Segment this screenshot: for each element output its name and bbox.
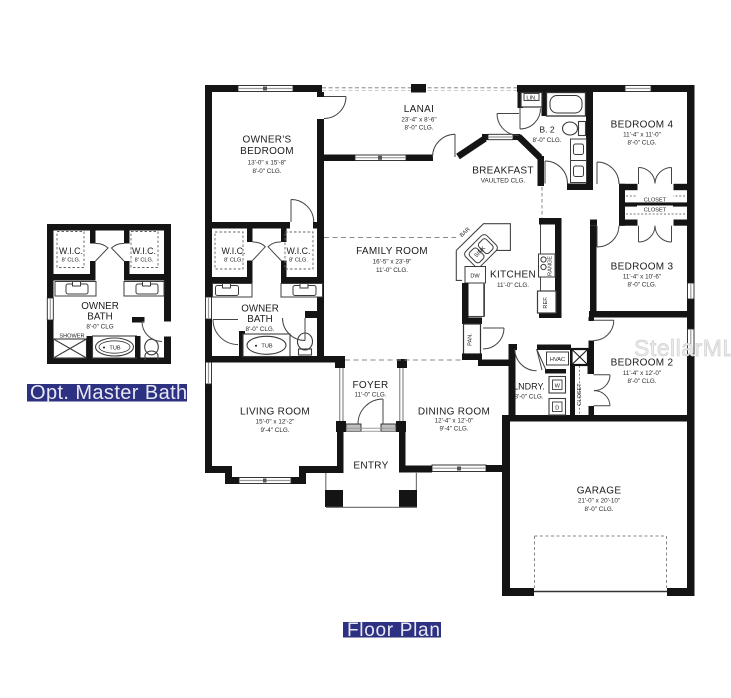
svg-text:11'-0" CLG.: 11'-0" CLG. bbox=[376, 267, 408, 274]
svg-text:8'-0" CLG: 8'-0" CLG bbox=[86, 324, 113, 331]
svg-text:SHOWER: SHOWER bbox=[59, 334, 84, 340]
svg-text:9'-4" CLG.: 9'-4" CLG. bbox=[261, 427, 290, 434]
svg-text:FAMILY ROOM: FAMILY ROOM bbox=[356, 246, 428, 257]
svg-text:8'-0" CLG.: 8'-0" CLG. bbox=[628, 282, 657, 289]
svg-text:CLOSET: CLOSET bbox=[644, 207, 667, 213]
svg-text:23'-4" x 8'-6": 23'-4" x 8'-6" bbox=[401, 117, 436, 124]
svg-text:8' CLG.: 8' CLG. bbox=[62, 258, 81, 264]
svg-text:DINING ROOM: DINING ROOM bbox=[418, 407, 490, 418]
svg-text:8'-0" CLG.: 8'-0" CLG. bbox=[246, 326, 275, 333]
svg-text:BEDROOM 3: BEDROOM 3 bbox=[611, 262, 674, 273]
svg-text:OWNER: OWNER bbox=[81, 301, 119, 312]
svg-text:11'-4" x 11'-0": 11'-4" x 11'-0" bbox=[623, 132, 661, 139]
svg-text:8' CLG.: 8' CLG. bbox=[289, 258, 308, 264]
svg-text:13'-0" x 15'-8": 13'-0" x 15'-8" bbox=[248, 160, 287, 167]
svg-text:LNDRY.: LNDRY. bbox=[513, 382, 545, 392]
svg-text:11'-0" CLG.: 11'-0" CLG. bbox=[497, 282, 529, 289]
svg-text:11'-4" x 10'-6": 11'-4" x 10'-6" bbox=[623, 274, 661, 281]
svg-text:8' CLG.: 8' CLG. bbox=[135, 258, 154, 264]
svg-text:OWNER'S: OWNER'S bbox=[242, 135, 291, 146]
svg-text:12'-4" x 12'-0": 12'-4" x 12'-0" bbox=[435, 418, 474, 425]
svg-text:KITCHEN: KITCHEN bbox=[490, 270, 536, 281]
svg-text:ENTRY: ENTRY bbox=[353, 461, 388, 472]
svg-text:W.I.C.: W.I.C. bbox=[287, 246, 311, 256]
svg-text:BATH: BATH bbox=[247, 314, 272, 325]
svg-text:BATH: BATH bbox=[87, 312, 112, 323]
svg-text:BREAKFAST: BREAKFAST bbox=[472, 166, 534, 177]
svg-text:8'-0" CLG.: 8'-0" CLG. bbox=[533, 137, 562, 144]
svg-text:LIVING ROOM: LIVING ROOM bbox=[240, 407, 310, 418]
svg-text:8'-0" CLG.: 8'-0" CLG. bbox=[628, 378, 657, 385]
svg-text:8'-0" CLG.: 8'-0" CLG. bbox=[515, 394, 544, 401]
svg-text:DW: DW bbox=[470, 274, 480, 280]
svg-text:REF.: REF. bbox=[543, 296, 549, 309]
svg-text:LIN.: LIN. bbox=[526, 96, 537, 102]
svg-text:W.I.C.: W.I.C. bbox=[59, 246, 83, 256]
svg-text:8'-0" CLG.: 8'-0" CLG. bbox=[585, 506, 614, 513]
svg-text:OWNER: OWNER bbox=[241, 304, 279, 315]
svg-text:8' CLG.: 8' CLG. bbox=[224, 258, 243, 264]
svg-text:W.I.C.: W.I.C. bbox=[132, 246, 156, 256]
svg-text:HVAC: HVAC bbox=[550, 357, 565, 363]
svg-text:GARAGE: GARAGE bbox=[577, 486, 622, 497]
svg-text:8'-0" CLG.: 8'-0" CLG. bbox=[253, 168, 282, 175]
svg-text:W: W bbox=[555, 384, 561, 390]
svg-text:BEDROOM: BEDROOM bbox=[240, 146, 294, 157]
svg-text:VAULTED CLG.: VAULTED CLG. bbox=[481, 178, 526, 185]
svg-text:8'-0" CLG.: 8'-0" CLG. bbox=[405, 125, 434, 132]
svg-text:FOYER: FOYER bbox=[353, 380, 389, 391]
svg-text:CLOSET: CLOSET bbox=[644, 197, 667, 203]
svg-text:W.I.C.: W.I.C. bbox=[222, 246, 246, 256]
svg-text:StellarMLS: StellarMLS bbox=[634, 335, 731, 361]
svg-text:RANGE: RANGE bbox=[548, 256, 554, 276]
svg-text:TUB: TUB bbox=[109, 346, 120, 352]
svg-text:Opt. Master Bath: Opt. Master Bath bbox=[30, 382, 188, 404]
svg-text:11'-0" CLG.: 11'-0" CLG. bbox=[354, 392, 386, 399]
svg-text:BEDROOM 4: BEDROOM 4 bbox=[611, 120, 674, 131]
svg-text:LANAI: LANAI bbox=[404, 104, 434, 115]
svg-text:8'-0" CLG.: 8'-0" CLG. bbox=[628, 140, 657, 147]
svg-text:D: D bbox=[555, 406, 559, 412]
svg-text:B. 2: B. 2 bbox=[539, 125, 555, 135]
svg-text:Floor Plan: Floor Plan bbox=[347, 620, 441, 641]
svg-text:9'-4" CLG.: 9'-4" CLG. bbox=[440, 426, 469, 433]
svg-text:11'-4" x 12'-0": 11'-4" x 12'-0" bbox=[623, 370, 661, 377]
svg-text:21'-0" x 20'-10": 21'-0" x 20'-10" bbox=[578, 498, 620, 505]
svg-text:TUB: TUB bbox=[261, 344, 272, 350]
svg-text:CLOSET: CLOSET bbox=[577, 383, 583, 406]
svg-text:PAN.: PAN. bbox=[468, 333, 474, 346]
svg-text:16'-5" x 23'-9": 16'-5" x 23'-9" bbox=[373, 259, 412, 266]
svg-text:15'-0" x 12'-2": 15'-0" x 12'-2" bbox=[256, 419, 295, 426]
